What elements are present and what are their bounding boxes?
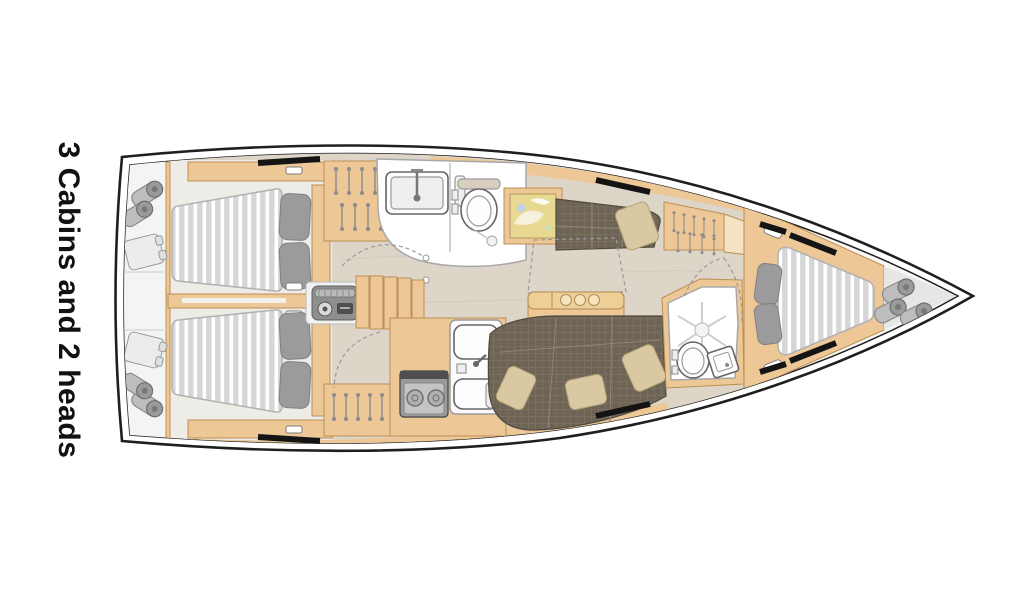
bed-port-pillow-1 <box>279 193 311 241</box>
vberth-pillow-1 <box>753 263 782 306</box>
galley-stove <box>400 371 448 417</box>
aft-head-drain <box>487 236 497 246</box>
wardrobe-aft-bottom <box>324 384 398 436</box>
chart-table <box>504 188 562 244</box>
yacht-layout-diagram: 3 Cabins and 2 heads <box>0 0 1024 600</box>
boat-plan-svg <box>0 0 1024 600</box>
bed-port-mattress <box>172 189 282 291</box>
bed-starboard-pillow-2 <box>279 361 311 409</box>
settee-starboard <box>556 199 660 252</box>
forward-head-toilet <box>677 342 709 378</box>
engine-box <box>306 282 364 324</box>
bed-starboard-mattress <box>172 310 282 412</box>
aft-head-sink <box>386 169 448 214</box>
vberth-pillow-2 <box>753 303 782 346</box>
